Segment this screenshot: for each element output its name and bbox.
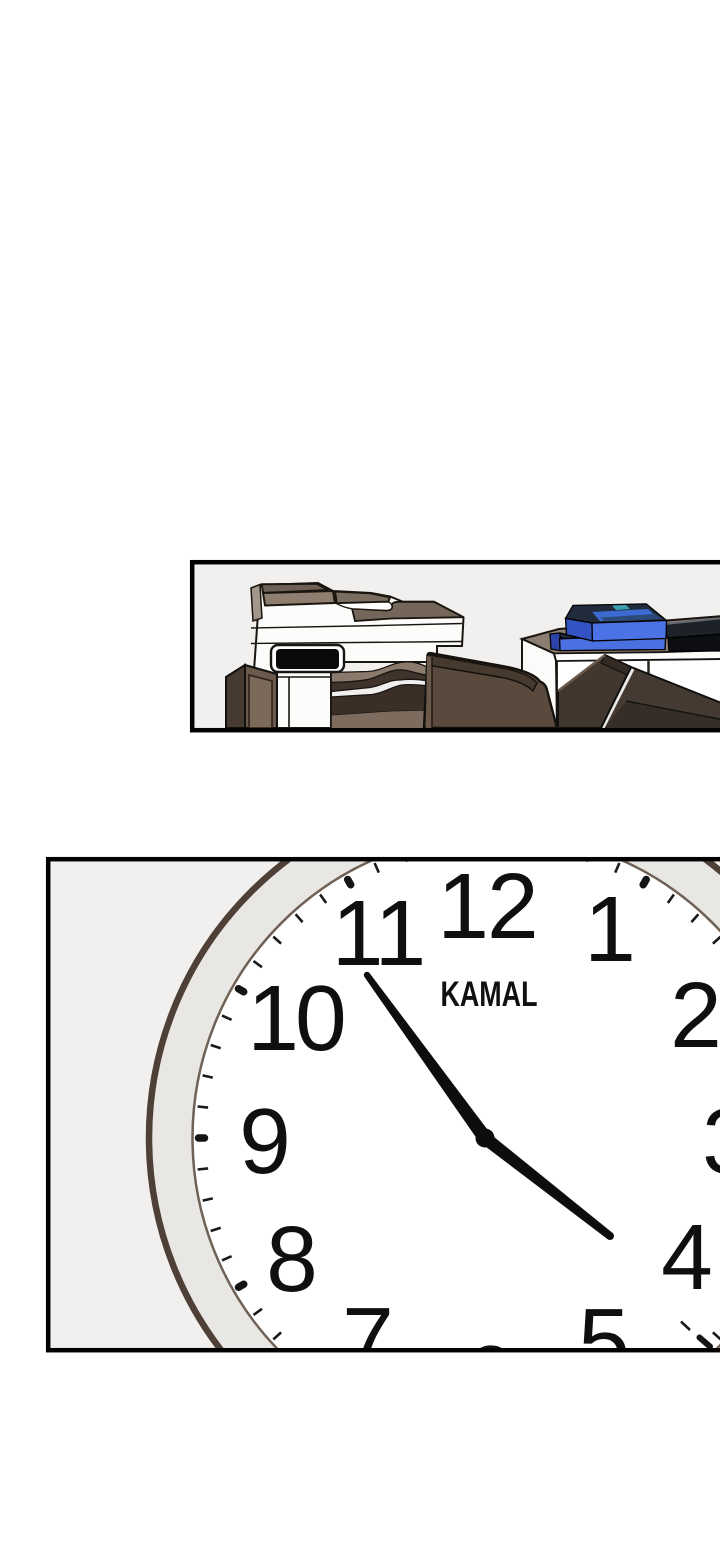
svg-text:1: 1 (584, 877, 636, 981)
svg-text:7: 7 (342, 1288, 394, 1392)
svg-text:4: 4 (661, 1205, 713, 1309)
svg-text:8: 8 (266, 1207, 318, 1311)
svg-text:10: 10 (247, 966, 344, 1070)
svg-text:5: 5 (578, 1289, 630, 1393)
svg-text:12: 12 (437, 854, 536, 958)
svg-text:3: 3 (702, 1089, 720, 1193)
svg-text:KAMAL: KAMAL (441, 975, 538, 1014)
svg-text:11: 11 (332, 881, 425, 985)
svg-text:2: 2 (670, 963, 720, 1067)
svg-text:9: 9 (239, 1089, 291, 1193)
svg-text:6: 6 (463, 1326, 515, 1430)
